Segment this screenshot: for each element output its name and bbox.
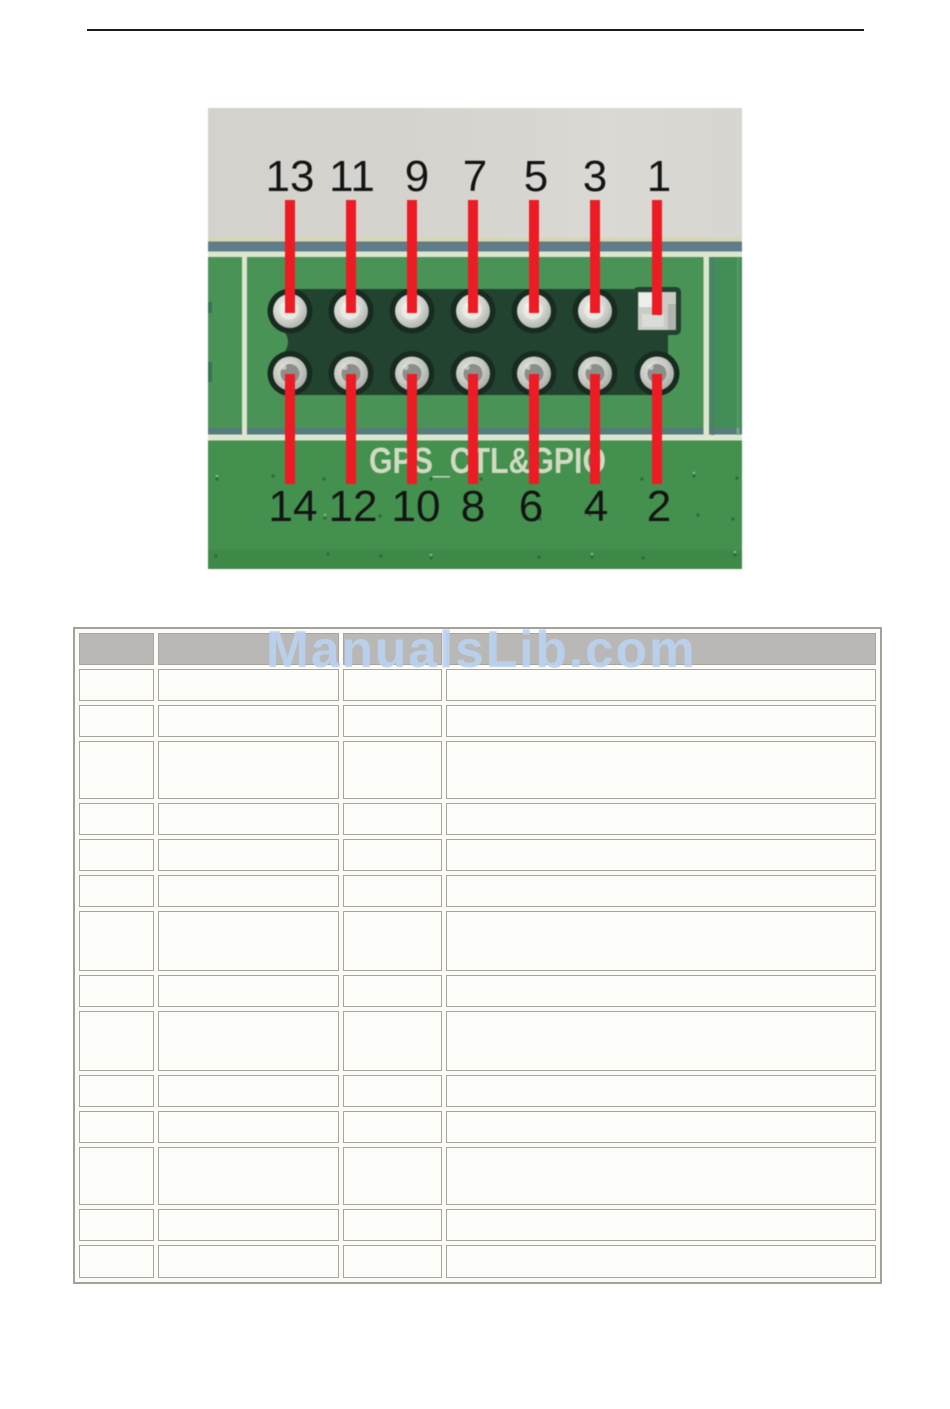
svg-text:5: 5 [524, 152, 548, 201]
svg-text:6: 6 [519, 482, 543, 531]
svg-text:2: 2 [647, 482, 671, 531]
svg-text:4: 4 [584, 482, 608, 531]
svg-text:14: 14 [269, 482, 318, 531]
svg-text:13: 13 [266, 152, 315, 201]
svg-text:1: 1 [647, 152, 671, 201]
svg-text:8: 8 [461, 482, 485, 531]
svg-text:11: 11 [329, 152, 375, 201]
svg-text:10: 10 [392, 482, 441, 531]
svg-text:12: 12 [329, 482, 378, 531]
svg-text:3: 3 [583, 152, 607, 201]
svg-text:7: 7 [463, 152, 487, 201]
svg-text:GPS_CTL&GPIO: GPS_CTL&GPIO [369, 440, 606, 481]
svg-text:9: 9 [405, 152, 429, 201]
